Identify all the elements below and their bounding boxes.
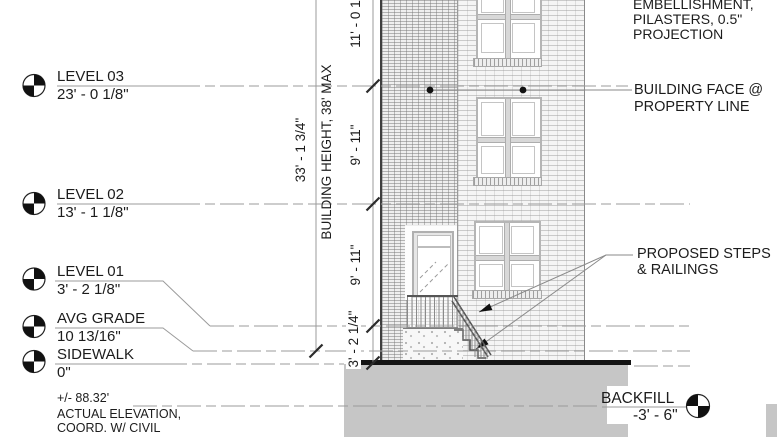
datum-sidewalk [23,351,45,373]
embellishment-note-line3: PROJECTION [633,27,723,42]
door-glazing [417,247,451,296]
civil-note-line2: ACTUAL ELEVATION, [57,407,181,421]
stoop-concrete [403,328,463,362]
steps-note-line2: & RAILINGS [637,262,718,279]
level-line-01 [55,281,690,326]
window-pane [481,0,504,13]
overall-dimension-text: 33' - 1 3/4" [293,90,309,210]
backfill-area [344,364,628,437]
dim-seg-top: 11' - 0 1/4" [348,0,364,76]
window-sill [472,290,542,299]
sidewalk-elevation: 0" [57,365,71,381]
window-level03 [476,0,542,61]
window-pane [511,226,534,254]
backfill-label: BACKFILL [601,391,674,407]
window-level01 [474,221,541,294]
level01-label: LEVEL 01 [57,264,124,280]
stoop-railing [407,295,458,329]
avg-grade-elevation: 10 13/16" [57,329,121,345]
avg-grade-label: AVG GRADE [57,311,145,327]
elevation-drawing: LEVEL 03 23' - 0 1/8" LEVEL 02 13' - 1 1… [0,0,777,437]
window-level02 [476,97,542,181]
steps-note-line1: PROPOSED STEPS [637,246,771,263]
level02-label: LEVEL 02 [57,187,124,203]
window-pane [479,226,503,254]
window-sill [473,58,542,67]
building-height-note: BUILDING HEIGHT, 38' MAX [319,52,335,252]
window-pane [481,23,504,53]
datum-level03 [23,75,45,97]
datum-level01 [23,268,45,290]
window-pane [481,102,504,136]
building-face-note-line1: BUILDING FACE @ [634,82,763,99]
window-sill [473,177,542,186]
datum-backfill [687,395,710,418]
level01-elevation: 3' - 2 1/8" [57,282,120,298]
level03-label: LEVEL 03 [57,69,124,85]
building-face-note-line2: PROPERTY LINE [634,99,750,116]
window-pane [512,102,535,136]
door-transom [417,235,451,247]
window-mullion [504,223,510,292]
entry-door [412,231,454,298]
window-pane [481,146,504,174]
window-mullion [505,99,511,179]
window-pane [512,23,535,53]
window-pane [511,264,534,287]
window-pane [479,264,503,287]
avg-grade-line [55,328,690,351]
backfill-elevation: -3' - 6" [633,408,678,424]
civil-note-line3: COORD. W/ CIVIL [57,421,160,435]
dim-seg-l1-sw: 3' - 2 1/4" [346,279,362,399]
dim-seg-l3-l2: 9' - 11" [348,85,364,205]
sidewalk-label: SIDEWALK [57,347,134,363]
datum-level02 [23,193,45,215]
window-mullion [505,0,511,59]
datum-avg-grade [23,316,45,338]
backfill-area-right [766,404,777,437]
embellishment-note-line2: PILASTERS, 0.5" [633,12,742,27]
grade-ground-line [346,360,631,365]
window-pane [512,146,535,174]
door-swing-lines [418,248,450,295]
level02-elevation: 13' - 1 1/8" [57,205,129,221]
civil-note-line1: +/- 88.32' [57,391,109,405]
window-pane [512,0,535,13]
level03-elevation: 23' - 0 1/8" [57,87,129,103]
